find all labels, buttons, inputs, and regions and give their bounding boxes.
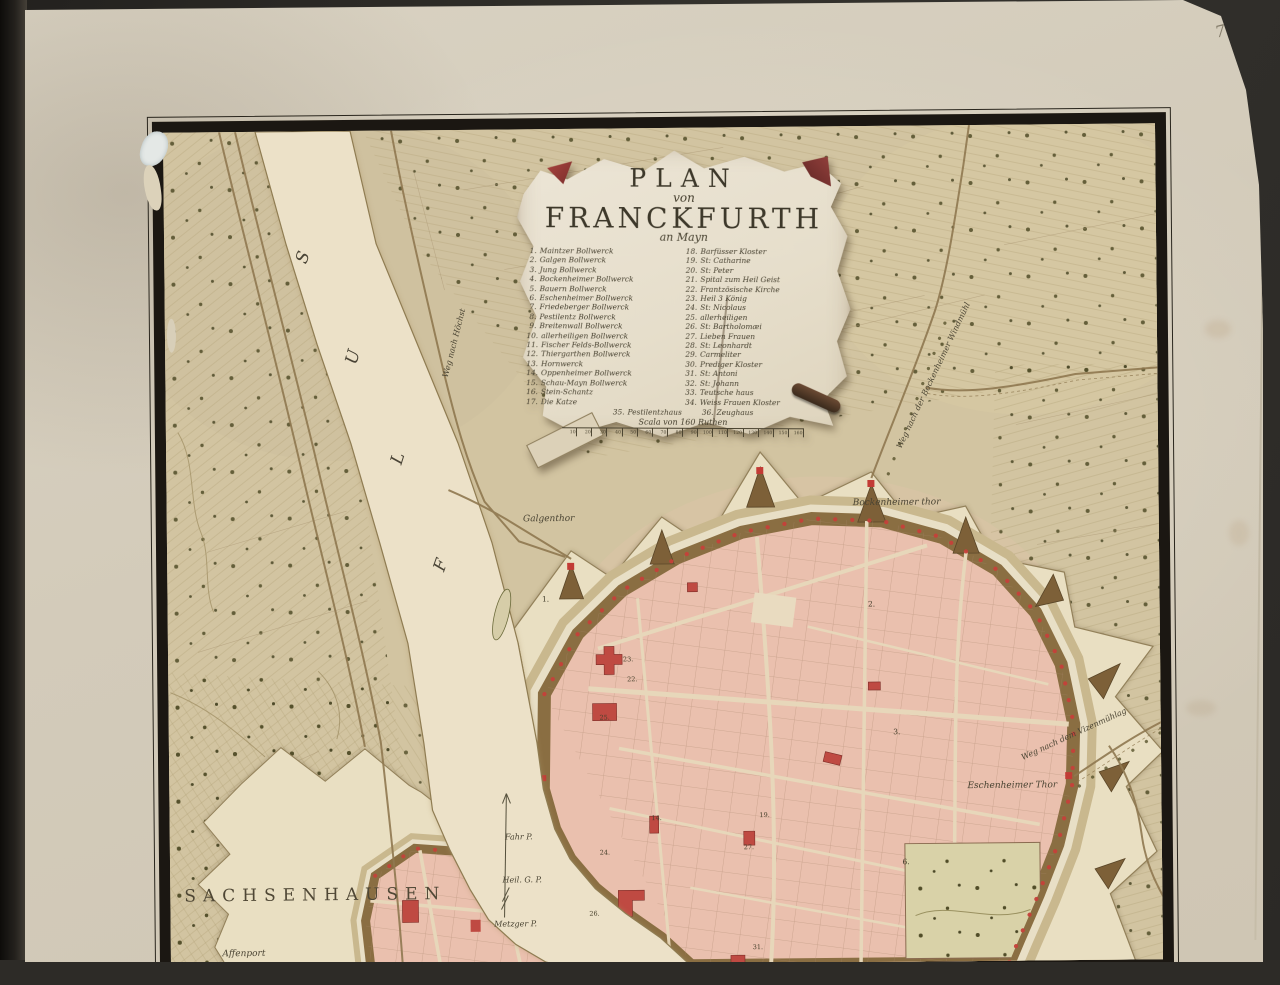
- foxing-stain: [1205, 320, 1231, 338]
- scale-tick: 80: [668, 429, 683, 437]
- scale-label: Scala von 160 Ruthen: [516, 417, 850, 427]
- title-cartouche: PLAN von FRANCKFURTH an Mayn 1.Maintzer …: [516, 147, 851, 440]
- label-sachsenhausen: SACHSENHAUSEN: [184, 884, 446, 907]
- foxing-stain: [1229, 520, 1249, 546]
- legend-column-left: 1.Maintzer Bollwerck2.Galgen Bollwerck3.…: [526, 246, 686, 407]
- bastion-number: 2.: [868, 599, 875, 608]
- building-number: 31.: [753, 943, 763, 951]
- building-number: 14.: [651, 814, 661, 822]
- scale-tick: 40: [607, 428, 622, 436]
- scale-tick: 130: [743, 429, 758, 437]
- photographed-atlas-page: 75: [0, 0, 1280, 960]
- label-fahr-pforte: Fahr P.: [505, 833, 533, 841]
- legend-column-right: 18.Barfüsser Kloster19.St: Catharine20.S…: [685, 247, 845, 408]
- legend-entry: 36.Zeughaus: [702, 408, 754, 417]
- scale-tick: 110: [713, 429, 728, 437]
- bastion-number: 6.: [902, 857, 909, 866]
- building-number: 24.: [600, 849, 610, 857]
- building-number: 25.: [599, 714, 609, 722]
- scale-tick: 30: [592, 428, 607, 436]
- building-number: 22.: [627, 675, 637, 683]
- bastion-number: 3.: [893, 727, 900, 736]
- label-heilig-geist-pforte: Heil. G. P.: [502, 876, 541, 884]
- label-eschenheimer-thor: Eschenheimer Thor: [967, 780, 1057, 791]
- scale-tick: 60: [638, 428, 653, 436]
- scale-tick: 160: [789, 429, 804, 437]
- album-page: 75: [25, 0, 1271, 962]
- foxing-stain: [1186, 700, 1216, 716]
- scale-tick: 50: [622, 428, 637, 436]
- scale-tick: 100: [698, 429, 713, 437]
- scale-tick: 20: [577, 428, 592, 436]
- label-affenport: Affenport: [222, 949, 265, 959]
- label-galgenthor: Galgenthor: [523, 514, 575, 524]
- legend-entry: 17.Die Katze: [526, 397, 685, 407]
- paper-damage-chip: [167, 319, 176, 353]
- scale-tick: 90: [683, 429, 698, 437]
- label-bockenheimer-thor: Bockenheimer thor: [853, 497, 941, 508]
- book-binding-edge: [0, 0, 27, 960]
- map-title: PLAN: [517, 163, 851, 193]
- building-number: 27.: [744, 843, 754, 851]
- building-number: 23.: [623, 655, 633, 663]
- map-legend: 1.Maintzer Bollwerck2.Galgen Bollwerck3.…: [526, 246, 845, 407]
- building-number: 19.: [759, 811, 769, 819]
- building-number: 26.: [589, 910, 599, 918]
- scale-tick: 150: [774, 429, 789, 437]
- bastion-number: 1.: [542, 595, 549, 604]
- scale-tick: 70: [653, 429, 668, 437]
- scale-tick: 120: [728, 429, 743, 437]
- legend-bottom-row: 35.Pestilentzhaus36.Zeughaus: [516, 407, 850, 417]
- legend-entry: 35.Pestilentzhaus: [613, 407, 682, 416]
- label-metzger-pforte: Metzger P.: [494, 920, 537, 928]
- scale-tick: 140: [759, 429, 774, 437]
- map-sheet: SACHSENHAUSEN Affenport Galgenthor Bocke…: [147, 107, 1179, 985]
- scale-tick: 10: [562, 428, 577, 436]
- handwritten-page-number: 75: [1213, 17, 1241, 41]
- scale-bar: 102030405060708090100110120130140150160: [562, 427, 804, 437]
- legend-entry: 34.Weiss Frauen Kloster: [685, 397, 844, 407]
